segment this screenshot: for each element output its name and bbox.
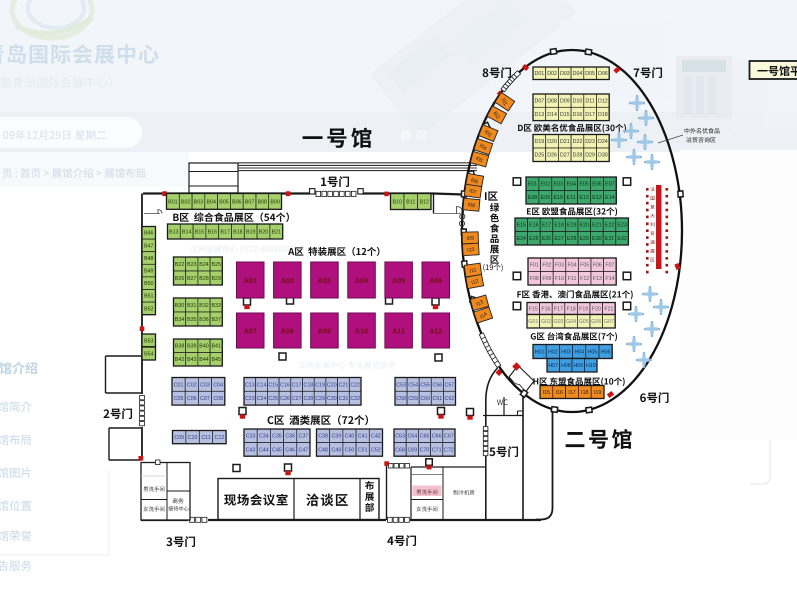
svg-text:D12: D12 <box>598 99 608 105</box>
svg-text:D10: D10 <box>573 99 583 105</box>
svg-text:A11: A11 <box>392 327 405 336</box>
svg-text:A10: A10 <box>355 327 368 336</box>
svg-text:C61: C61 <box>433 396 443 402</box>
svg-text:F16: F16 <box>541 306 550 312</box>
svg-text:B37: B37 <box>211 317 220 323</box>
svg-text:C10: C10 <box>188 435 198 441</box>
svg-text:C21: C21 <box>339 382 349 388</box>
svg-text:F09: F09 <box>542 276 551 282</box>
svg-text:E10: E10 <box>553 195 562 201</box>
svg-text:C43: C43 <box>246 447 256 453</box>
svg-text:F11: F11 <box>568 276 577 282</box>
svg-text:D04: D04 <box>573 71 583 77</box>
svg-text:D01: D01 <box>535 71 545 77</box>
svg-text:B33: B33 <box>211 303 220 309</box>
svg-text:D30: D30 <box>598 153 608 159</box>
svg-text:C06: C06 <box>187 396 197 402</box>
svg-text:B53: B53 <box>144 338 153 344</box>
svg-text:E16: E16 <box>529 223 538 229</box>
svg-text:B51: B51 <box>144 294 153 300</box>
svg-text:E07: E07 <box>605 182 614 188</box>
svg-text:C27: C27 <box>292 396 302 402</box>
svg-text:G03: G03 <box>553 319 563 325</box>
svg-text:D16: D16 <box>573 112 583 118</box>
svg-text:B20: B20 <box>259 229 268 235</box>
svg-text:A12: A12 <box>429 327 442 336</box>
svg-text:E28: E28 <box>567 236 576 242</box>
svg-text:D21: D21 <box>560 139 570 145</box>
svg-text:E22: E22 <box>605 223 614 229</box>
svg-text:C28: C28 <box>304 396 314 402</box>
svg-text:D18: D18 <box>598 112 608 118</box>
svg-text:B26: B26 <box>175 276 184 282</box>
svg-text:C66: C66 <box>432 434 442 440</box>
svg-text:C33: C33 <box>246 434 256 440</box>
svg-text:E31: E31 <box>605 236 614 242</box>
svg-text:F08: F08 <box>530 276 539 282</box>
svg-text:C03: C03 <box>200 382 210 388</box>
svg-text:A01: A01 <box>244 276 257 285</box>
svg-text:B32: B32 <box>199 303 208 309</box>
svg-text:B10: B10 <box>392 199 401 205</box>
svg-text:G06: G06 <box>591 319 601 325</box>
svg-text:C44: C44 <box>259 447 269 453</box>
svg-text:B23: B23 <box>187 262 196 268</box>
svg-text:G01: G01 <box>528 319 538 325</box>
svg-text:D15: D15 <box>560 112 570 118</box>
svg-text:F20: F20 <box>592 306 601 312</box>
svg-text:F14: F14 <box>605 276 614 282</box>
svg-text:B01: B01 <box>168 199 177 205</box>
svg-text:C29: C29 <box>315 396 325 402</box>
svg-text:C01: C01 <box>174 382 184 388</box>
svg-text:C22: C22 <box>350 382 360 388</box>
svg-text:C64: C64 <box>407 434 417 440</box>
svg-text:D28: D28 <box>573 153 583 159</box>
svg-text:C09: C09 <box>174 435 184 441</box>
svg-text:H09: H09 <box>573 363 583 369</box>
svg-text:C12: C12 <box>215 435 225 441</box>
svg-text:C07: C07 <box>200 396 210 402</box>
svg-text:B39: B39 <box>187 344 196 350</box>
svg-text:D06: D06 <box>598 71 608 77</box>
svg-text:E06: E06 <box>592 182 601 188</box>
svg-text:B19: B19 <box>246 229 255 235</box>
svg-text:B05: B05 <box>219 199 228 205</box>
svg-text:A09: A09 <box>318 327 331 336</box>
svg-text:D29: D29 <box>585 153 595 159</box>
svg-text:B11: B11 <box>406 199 415 205</box>
svg-text:D26: D26 <box>547 153 557 159</box>
svg-text:F10: F10 <box>555 276 564 282</box>
svg-text:D09: D09 <box>560 99 570 105</box>
svg-text:E15: E15 <box>517 223 526 229</box>
svg-text:B08: B08 <box>258 199 267 205</box>
svg-text:C23: C23 <box>245 396 255 402</box>
svg-text:B24: B24 <box>199 262 208 268</box>
svg-text:B49: B49 <box>144 269 153 275</box>
svg-text:H04: H04 <box>574 349 584 355</box>
svg-text:E11: E11 <box>567 195 576 201</box>
svg-text:C16: C16 <box>280 382 290 388</box>
svg-text:B47: B47 <box>144 243 153 249</box>
svg-text:F12: F12 <box>580 276 589 282</box>
svg-text:C62: C62 <box>445 396 455 402</box>
svg-text:B03: B03 <box>194 199 203 205</box>
svg-text:A08: A08 <box>281 327 294 336</box>
svg-text:C53: C53 <box>396 382 406 388</box>
svg-text:E18: E18 <box>554 223 563 229</box>
svg-text:F04: F04 <box>568 263 577 269</box>
svg-text:B54: B54 <box>144 351 153 357</box>
svg-text:F06: F06 <box>593 263 602 269</box>
svg-text:E17: E17 <box>542 223 551 229</box>
svg-text:G07: G07 <box>604 319 614 325</box>
svg-text:B17: B17 <box>220 229 229 235</box>
svg-text:C51: C51 <box>358 447 368 453</box>
svg-text:A05: A05 <box>392 276 405 285</box>
svg-text:D23: D23 <box>585 139 595 145</box>
svg-text:D07: D07 <box>535 99 545 105</box>
svg-text:D11: D11 <box>585 99 594 105</box>
svg-text:H03: H03 <box>561 349 571 355</box>
svg-text:D22: D22 <box>573 139 583 145</box>
svg-text:B35: B35 <box>187 317 196 323</box>
svg-text:C35: C35 <box>272 434 282 440</box>
svg-text:I10: I10 <box>467 247 475 254</box>
svg-text:I09: I09 <box>467 236 475 242</box>
svg-text:D13: D13 <box>535 112 545 118</box>
svg-text:B29: B29 <box>211 276 220 282</box>
svg-text:H01: H01 <box>535 349 545 355</box>
svg-text:B42: B42 <box>175 357 184 363</box>
svg-text:F05: F05 <box>580 263 589 269</box>
svg-text:H06: H06 <box>601 349 611 355</box>
svg-text:E05: E05 <box>579 182 588 188</box>
svg-text:F19: F19 <box>579 306 588 312</box>
svg-text:C52: C52 <box>371 447 381 453</box>
svg-text:B50: B50 <box>144 281 153 287</box>
svg-text:I17: I17 <box>568 390 575 396</box>
svg-text:F17: F17 <box>554 306 563 312</box>
svg-text:C38: C38 <box>318 434 328 440</box>
svg-text:B30: B30 <box>175 303 184 309</box>
svg-text:C40: C40 <box>345 434 355 440</box>
svg-text:E03: E03 <box>553 182 562 188</box>
svg-text:H02: H02 <box>548 349 558 355</box>
svg-text:B48: B48 <box>144 256 153 262</box>
svg-text:E23: E23 <box>617 223 626 229</box>
svg-text:C19: C19 <box>315 382 325 388</box>
svg-text:I16: I16 <box>556 390 563 396</box>
svg-text:C11: C11 <box>201 435 210 441</box>
svg-text:E14: E14 <box>605 195 614 201</box>
svg-text:C54: C54 <box>408 382 418 388</box>
svg-text:C58: C58 <box>396 396 406 402</box>
svg-text:B36: B36 <box>199 317 208 323</box>
svg-text:C24: C24 <box>257 396 267 402</box>
svg-text:F13: F13 <box>593 276 602 282</box>
svg-text:E13: E13 <box>592 195 601 201</box>
svg-text:A07: A07 <box>244 327 257 336</box>
svg-text:H05: H05 <box>588 349 598 355</box>
svg-text:C68: C68 <box>395 447 405 453</box>
svg-text:C04: C04 <box>213 382 223 388</box>
svg-text:F01: F01 <box>530 263 539 269</box>
svg-text:E26: E26 <box>542 236 551 242</box>
svg-text:E24: E24 <box>517 236 526 242</box>
svg-text:B34: B34 <box>175 317 184 323</box>
svg-text:C57: C57 <box>445 382 455 388</box>
svg-text:C31: C31 <box>339 396 349 402</box>
svg-text:B02: B02 <box>181 199 190 205</box>
svg-text:B41: B41 <box>211 344 220 350</box>
svg-text:E19: E19 <box>567 223 576 229</box>
svg-text:E25: E25 <box>529 236 538 242</box>
svg-text:G02: G02 <box>541 319 551 325</box>
svg-text:C65: C65 <box>420 434 430 440</box>
svg-text:I15: I15 <box>543 390 550 396</box>
svg-text:C45: C45 <box>272 447 282 453</box>
svg-text:D02: D02 <box>547 71 557 77</box>
svg-text:B22: B22 <box>175 262 184 268</box>
svg-text:H10: H10 <box>586 363 596 369</box>
svg-text:G05: G05 <box>579 319 589 325</box>
svg-text:B38: B38 <box>175 344 184 350</box>
svg-text:D14: D14 <box>547 112 557 118</box>
svg-text:B13: B13 <box>169 229 178 235</box>
svg-text:I19: I19 <box>594 390 601 396</box>
svg-text:F02: F02 <box>542 263 551 269</box>
svg-text:H08: H08 <box>561 363 571 369</box>
svg-text:B04: B04 <box>206 199 215 205</box>
svg-text:E27: E27 <box>554 236 563 242</box>
svg-text:A03: A03 <box>318 276 331 285</box>
svg-text:C17: C17 <box>292 382 302 388</box>
svg-text:C48: C48 <box>318 447 328 453</box>
svg-text:C41: C41 <box>358 434 368 440</box>
svg-text:C49: C49 <box>331 447 341 453</box>
svg-text:C69: C69 <box>407 447 417 453</box>
svg-text:E04: E04 <box>566 182 575 188</box>
svg-text:C02: C02 <box>187 382 197 388</box>
svg-text:F21: F21 <box>604 306 613 312</box>
svg-text:E09: E09 <box>541 195 550 201</box>
svg-text:B09: B09 <box>270 199 279 205</box>
svg-text:C14: C14 <box>257 382 267 388</box>
svg-text:C30: C30 <box>327 396 337 402</box>
svg-text:B40: B40 <box>199 344 208 350</box>
svg-text:A02: A02 <box>281 276 294 285</box>
svg-text:C26: C26 <box>280 396 290 402</box>
svg-text:C08: C08 <box>213 396 223 402</box>
svg-text:B07: B07 <box>245 199 254 205</box>
svg-text:B43: B43 <box>187 357 196 363</box>
svg-text:C32: C32 <box>350 396 360 402</box>
svg-text:B21: B21 <box>272 229 281 235</box>
svg-text:D17: D17 <box>585 112 595 118</box>
svg-text:D27: D27 <box>560 153 570 159</box>
svg-text:B31: B31 <box>187 303 196 309</box>
svg-text:C46: C46 <box>285 447 295 453</box>
svg-text:B46: B46 <box>144 231 153 237</box>
svg-text:E02: E02 <box>541 182 550 188</box>
svg-text:D20: D20 <box>547 139 557 145</box>
svg-text:F07: F07 <box>605 263 614 269</box>
svg-text:B14: B14 <box>182 229 191 235</box>
svg-text:C42: C42 <box>371 434 381 440</box>
svg-text:C36: C36 <box>285 434 295 440</box>
svg-text:C70: C70 <box>420 447 430 453</box>
svg-text:B25: B25 <box>211 262 220 268</box>
svg-text:C56: C56 <box>433 382 443 388</box>
svg-text:C67: C67 <box>444 434 454 440</box>
svg-text:E30: E30 <box>592 236 601 242</box>
svg-text:D24: D24 <box>598 139 608 145</box>
svg-text:B18: B18 <box>233 229 242 235</box>
svg-text:C05: C05 <box>174 396 184 402</box>
svg-text:C60: C60 <box>420 396 430 402</box>
svg-text:C37: C37 <box>299 434 309 440</box>
svg-text:F18: F18 <box>567 306 576 312</box>
svg-text:C72: C72 <box>444 447 454 453</box>
svg-text:C20: C20 <box>327 382 337 388</box>
svg-text:B06: B06 <box>232 199 241 205</box>
svg-text:B16: B16 <box>208 229 217 235</box>
svg-text:C25: C25 <box>268 396 278 402</box>
svg-text:C47: C47 <box>299 447 309 453</box>
svg-text:D19: D19 <box>535 139 545 145</box>
svg-text:B45: B45 <box>211 357 220 363</box>
svg-text:A06: A06 <box>429 276 442 285</box>
svg-text:B52: B52 <box>144 306 153 312</box>
svg-text:D05: D05 <box>585 71 595 77</box>
svg-text:F15: F15 <box>529 306 538 312</box>
svg-text:C39: C39 <box>331 434 341 440</box>
svg-text:F03: F03 <box>555 263 564 269</box>
svg-text:D25: D25 <box>535 153 545 159</box>
svg-text:E20: E20 <box>580 223 589 229</box>
svg-text:C63: C63 <box>395 434 405 440</box>
svg-text:E32: E32 <box>617 236 626 242</box>
svg-text:E01: E01 <box>528 182 537 188</box>
svg-text:E21: E21 <box>592 223 601 229</box>
svg-text:C50: C50 <box>345 447 355 453</box>
svg-text:B15: B15 <box>195 229 204 235</box>
svg-text:B27: B27 <box>187 276 196 282</box>
svg-text:C18: C18 <box>304 382 314 388</box>
svg-text:E12: E12 <box>579 195 588 201</box>
svg-text:E29: E29 <box>580 236 589 242</box>
svg-text:E08: E08 <box>528 195 537 201</box>
svg-text:D03: D03 <box>560 71 570 77</box>
svg-text:G04: G04 <box>566 319 576 325</box>
svg-text:D08: D08 <box>547 99 557 105</box>
svg-text:B44: B44 <box>199 357 208 363</box>
svg-text:A04: A04 <box>355 276 368 285</box>
svg-text:C71: C71 <box>432 447 442 453</box>
svg-text:C55: C55 <box>420 382 430 388</box>
svg-text:B12: B12 <box>419 199 428 205</box>
svg-text:B28: B28 <box>199 276 208 282</box>
svg-text:I18: I18 <box>581 390 588 396</box>
svg-text:C13: C13 <box>245 382 255 388</box>
svg-text:C34: C34 <box>259 434 269 440</box>
svg-text:H07: H07 <box>548 363 558 369</box>
svg-text:C59: C59 <box>408 396 418 402</box>
svg-text:C15: C15 <box>268 382 278 388</box>
